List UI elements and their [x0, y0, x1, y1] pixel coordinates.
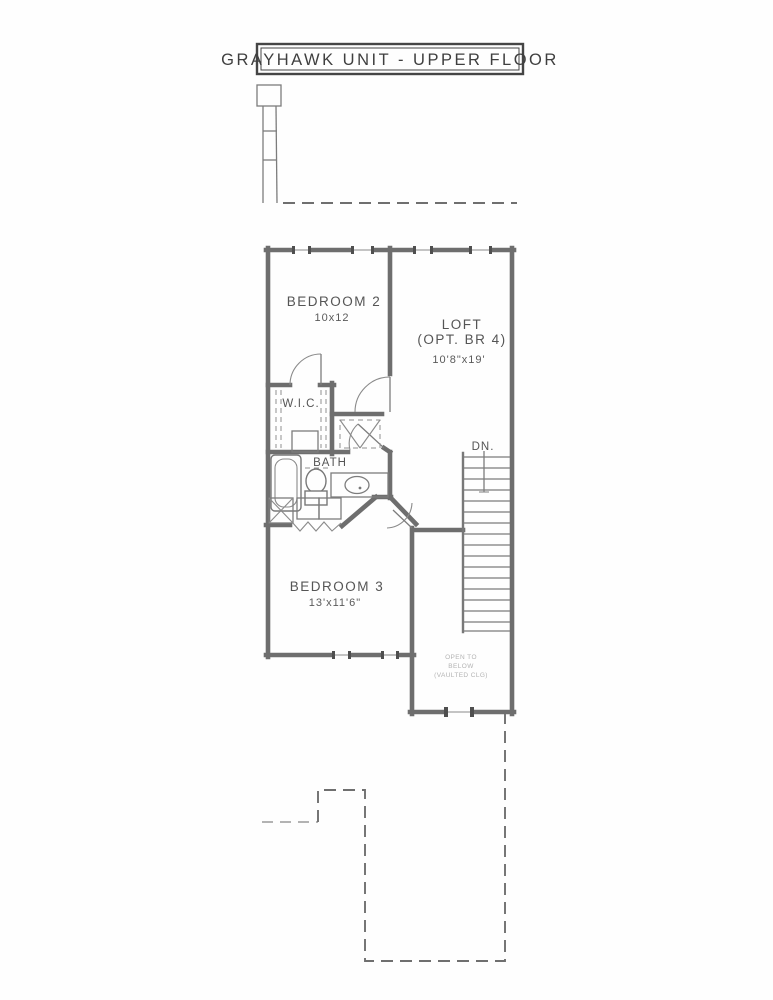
- wic-label: W.I.C.: [282, 398, 319, 410]
- loft-label: LOFT: [442, 317, 483, 332]
- bedroom3-label: BEDROOM 3: [290, 579, 385, 594]
- window-bedroom3-1: [332, 651, 351, 659]
- loft-dims: 10'8"x19': [432, 354, 485, 366]
- sink-drain: [359, 487, 362, 490]
- lower-floor-outline: [262, 714, 505, 961]
- floor-plan-page: GRAYHAWK UNIT - UPPER FLOOR: [0, 0, 773, 1000]
- door-bedroom2: [290, 354, 321, 385]
- window-top-3: [413, 246, 433, 254]
- door-bath: [349, 424, 384, 450]
- window-top-1: [292, 246, 311, 254]
- open-below-note-1: OPEN TO: [445, 654, 477, 661]
- dash-footprint: [318, 714, 505, 961]
- vanity-sink: [345, 477, 369, 494]
- bifold-closet-doors: [292, 522, 341, 531]
- linen-diag-2: [360, 420, 380, 448]
- window-top-2: [351, 246, 374, 254]
- chimney-box: [257, 85, 281, 106]
- linen-closet-outline: [340, 420, 380, 448]
- window-bottom-right: [444, 707, 474, 717]
- window-bedroom3-2: [381, 651, 399, 659]
- stairs-dn-label: DN.: [472, 441, 495, 453]
- open-below-note-3: (VAULTED CLG): [434, 672, 488, 679]
- door-loft: [355, 377, 390, 412]
- linen-closet: [340, 420, 380, 448]
- bath-label: BATH: [313, 457, 347, 469]
- bedroom2-dims: 10x12: [315, 312, 350, 324]
- title-block: GRAYHAWK UNIT - UPPER FLOOR: [221, 44, 559, 74]
- roof-reference-lines: [257, 85, 517, 203]
- floor-plan-drawing: GRAYHAWK UNIT - UPPER FLOOR: [0, 0, 773, 1000]
- bedroom2-label: BEDROOM 2: [287, 294, 382, 309]
- wall-closet-diagonal: [342, 497, 376, 526]
- toilet-bowl: [306, 469, 326, 493]
- plan-title: GRAYHAWK UNIT - UPPER FLOOR: [221, 51, 559, 69]
- window-top-4: [469, 246, 492, 254]
- bedroom3-dims: 13'x11'6": [309, 597, 361, 609]
- open-below-note-2: BELOW: [448, 663, 474, 670]
- stairs: [463, 451, 510, 632]
- loft-opt-label: (OPT. BR 4): [417, 332, 506, 347]
- wic-dresser: [292, 431, 318, 452]
- post-line-right: [276, 106, 277, 203]
